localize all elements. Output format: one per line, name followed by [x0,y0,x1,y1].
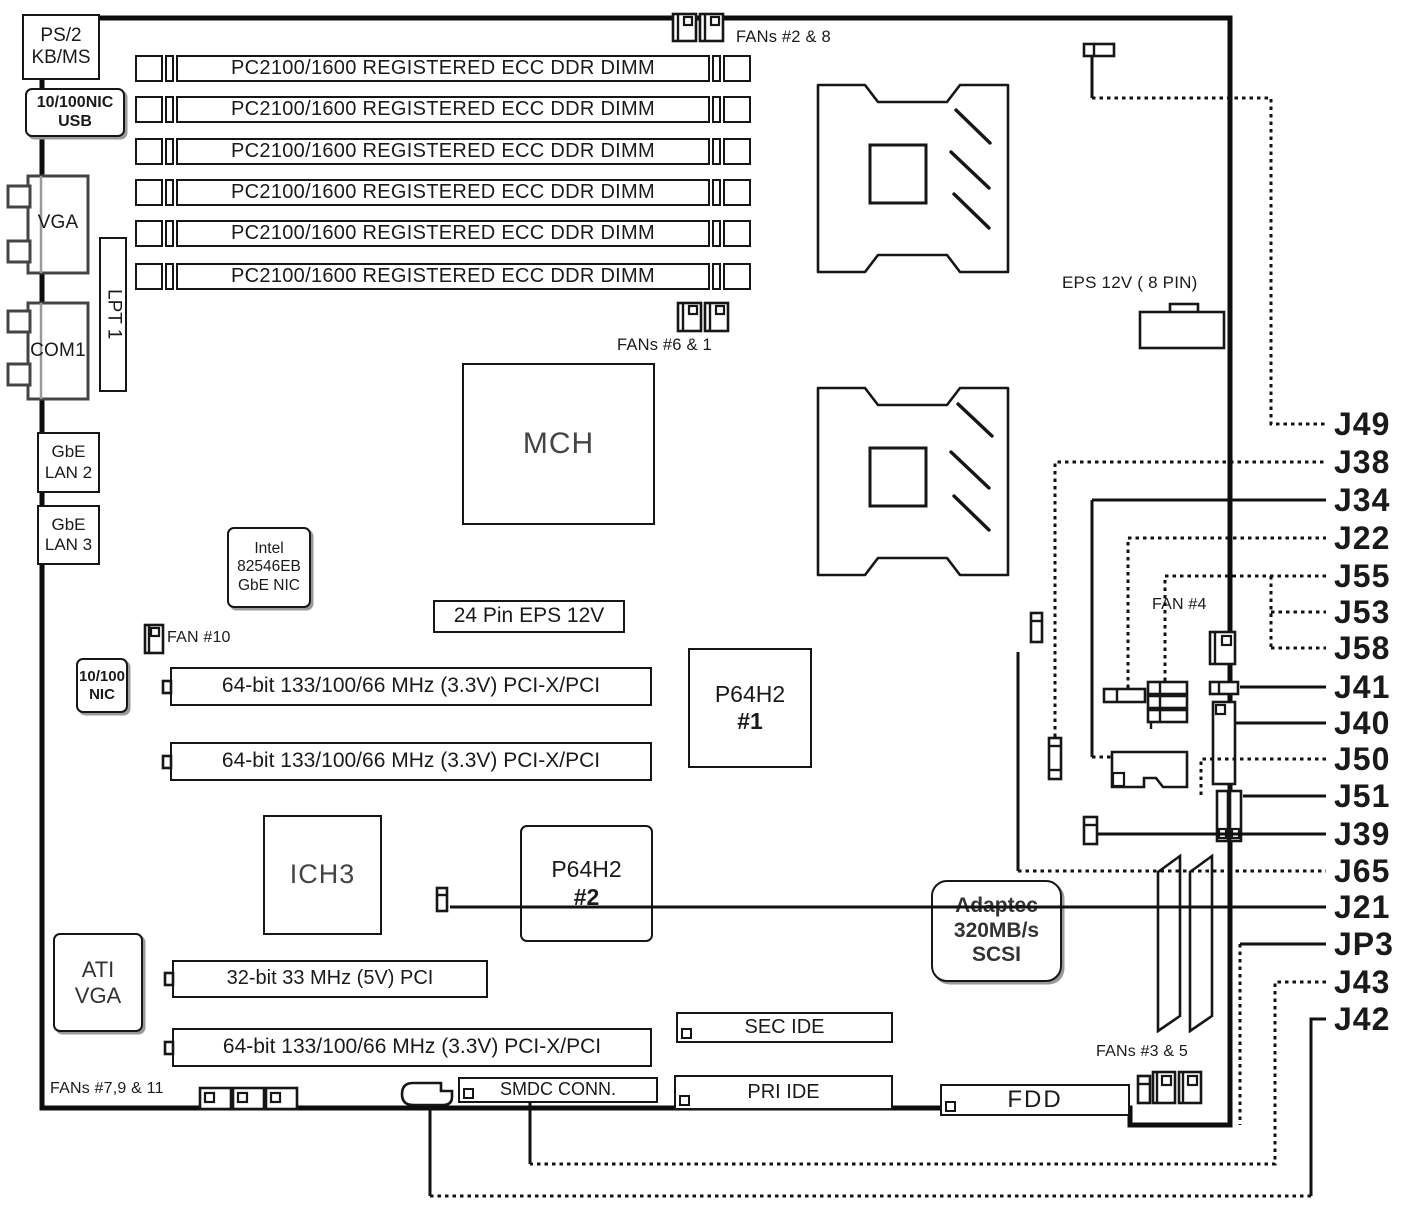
jumper-label: J21 [1334,888,1390,926]
jumper-label: J65 [1334,852,1390,890]
jumper-label: J22 [1334,519,1390,557]
jumper-label: J38 [1334,443,1390,481]
motherboard-diagram: PS/2 KB/MS 10/100NIC USB VGA COM1 LPT 1 … [0,0,1409,1217]
jumper-label: J39 [1334,815,1390,853]
jumper-label: JP3 [1334,925,1394,963]
jumper-label: J42 [1334,1000,1390,1038]
jumper-label: J43 [1334,963,1390,1001]
jumper-label: J51 [1334,777,1390,815]
jumper-label: J58 [1334,629,1390,667]
jumper-label: J40 [1334,704,1390,742]
jumper-label: J53 [1334,593,1390,631]
jumper-label: J49 [1334,405,1390,443]
jumper-label: J41 [1334,668,1390,706]
jumper-label: J50 [1334,740,1390,778]
jumper-label: J55 [1334,557,1390,595]
jumper-label: J34 [1334,481,1390,519]
jumper-label-column: J49J38J34J22J55J53J58J41J40J50J51J39J65J… [0,0,1409,1217]
